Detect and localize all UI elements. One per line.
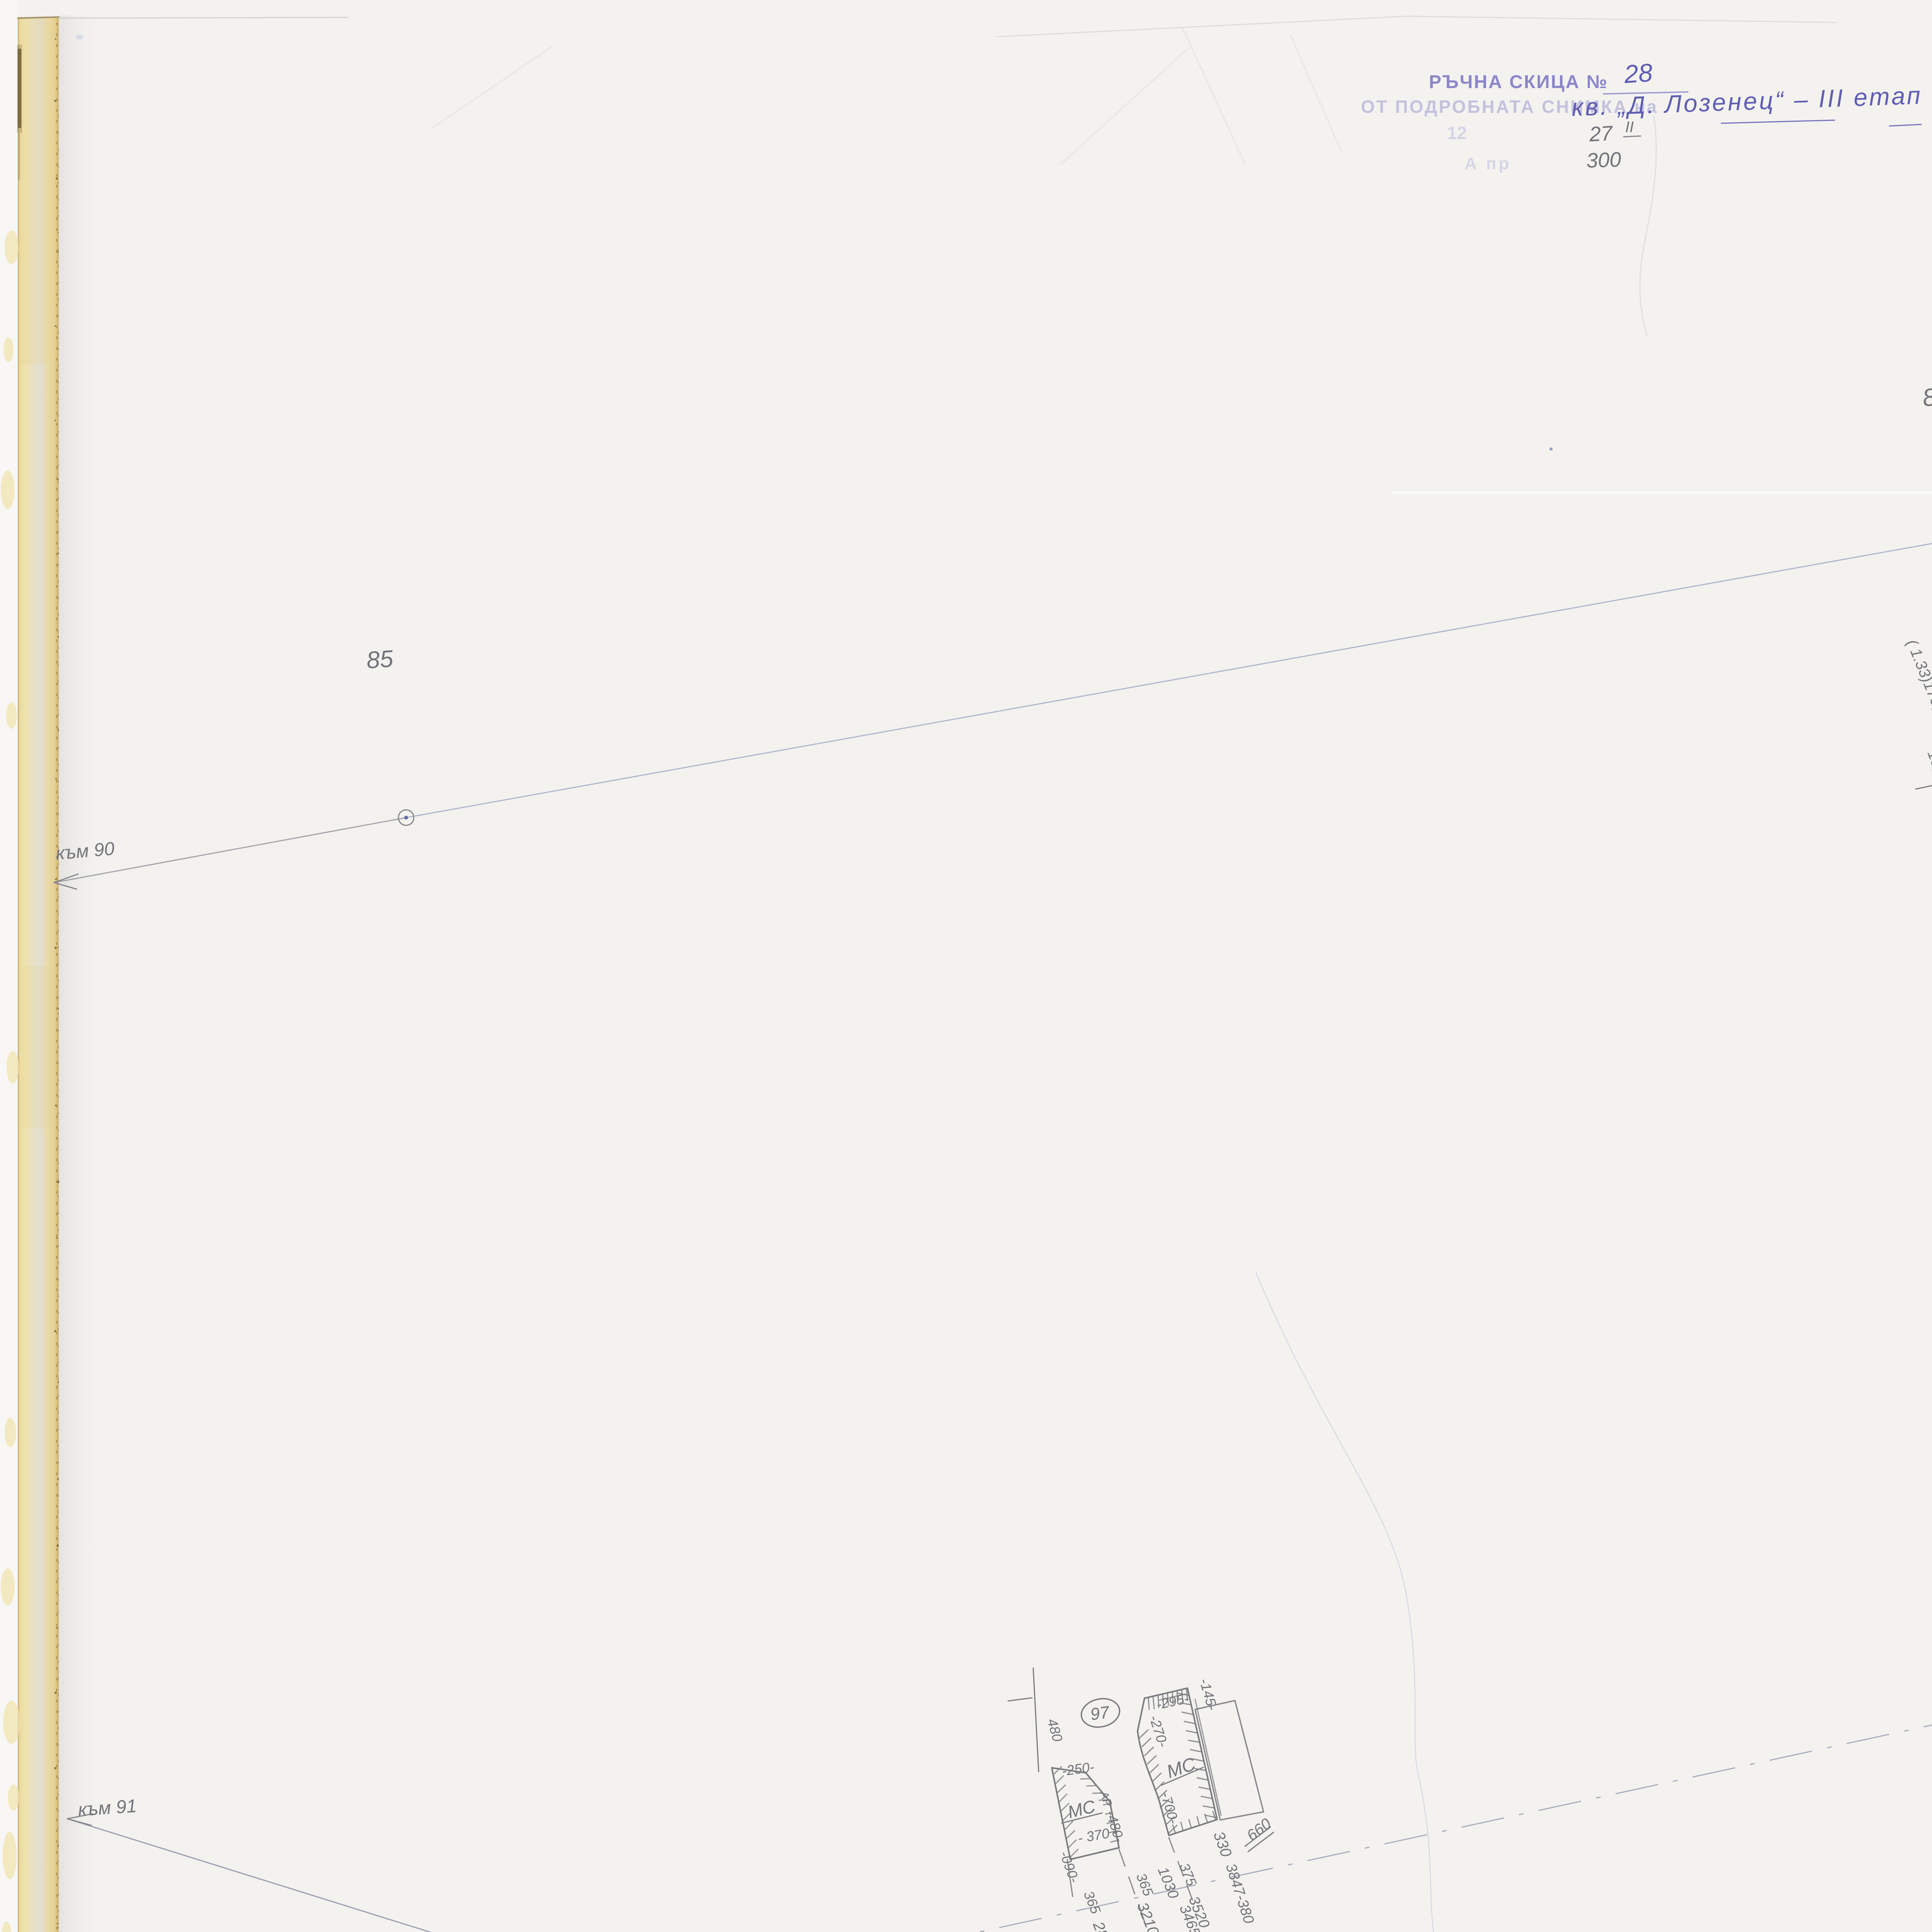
svg-text:към 91: към 91 [77,1796,137,1820]
svg-text:А пр: А пр [1464,154,1511,173]
svg-text:28: 28 [1623,58,1654,88]
svg-text:II: II [1625,119,1634,136]
svg-text:300: 300 [1586,148,1621,172]
svg-text:97: 97 [1089,1702,1111,1724]
svg-text:РЪЧНА СКИЦА №: РЪЧНА СКИЦА № [1429,72,1608,92]
svg-text:27: 27 [1588,122,1614,146]
svg-text:12: 12 [1447,123,1467,143]
svg-text:85: 85 [366,645,394,674]
